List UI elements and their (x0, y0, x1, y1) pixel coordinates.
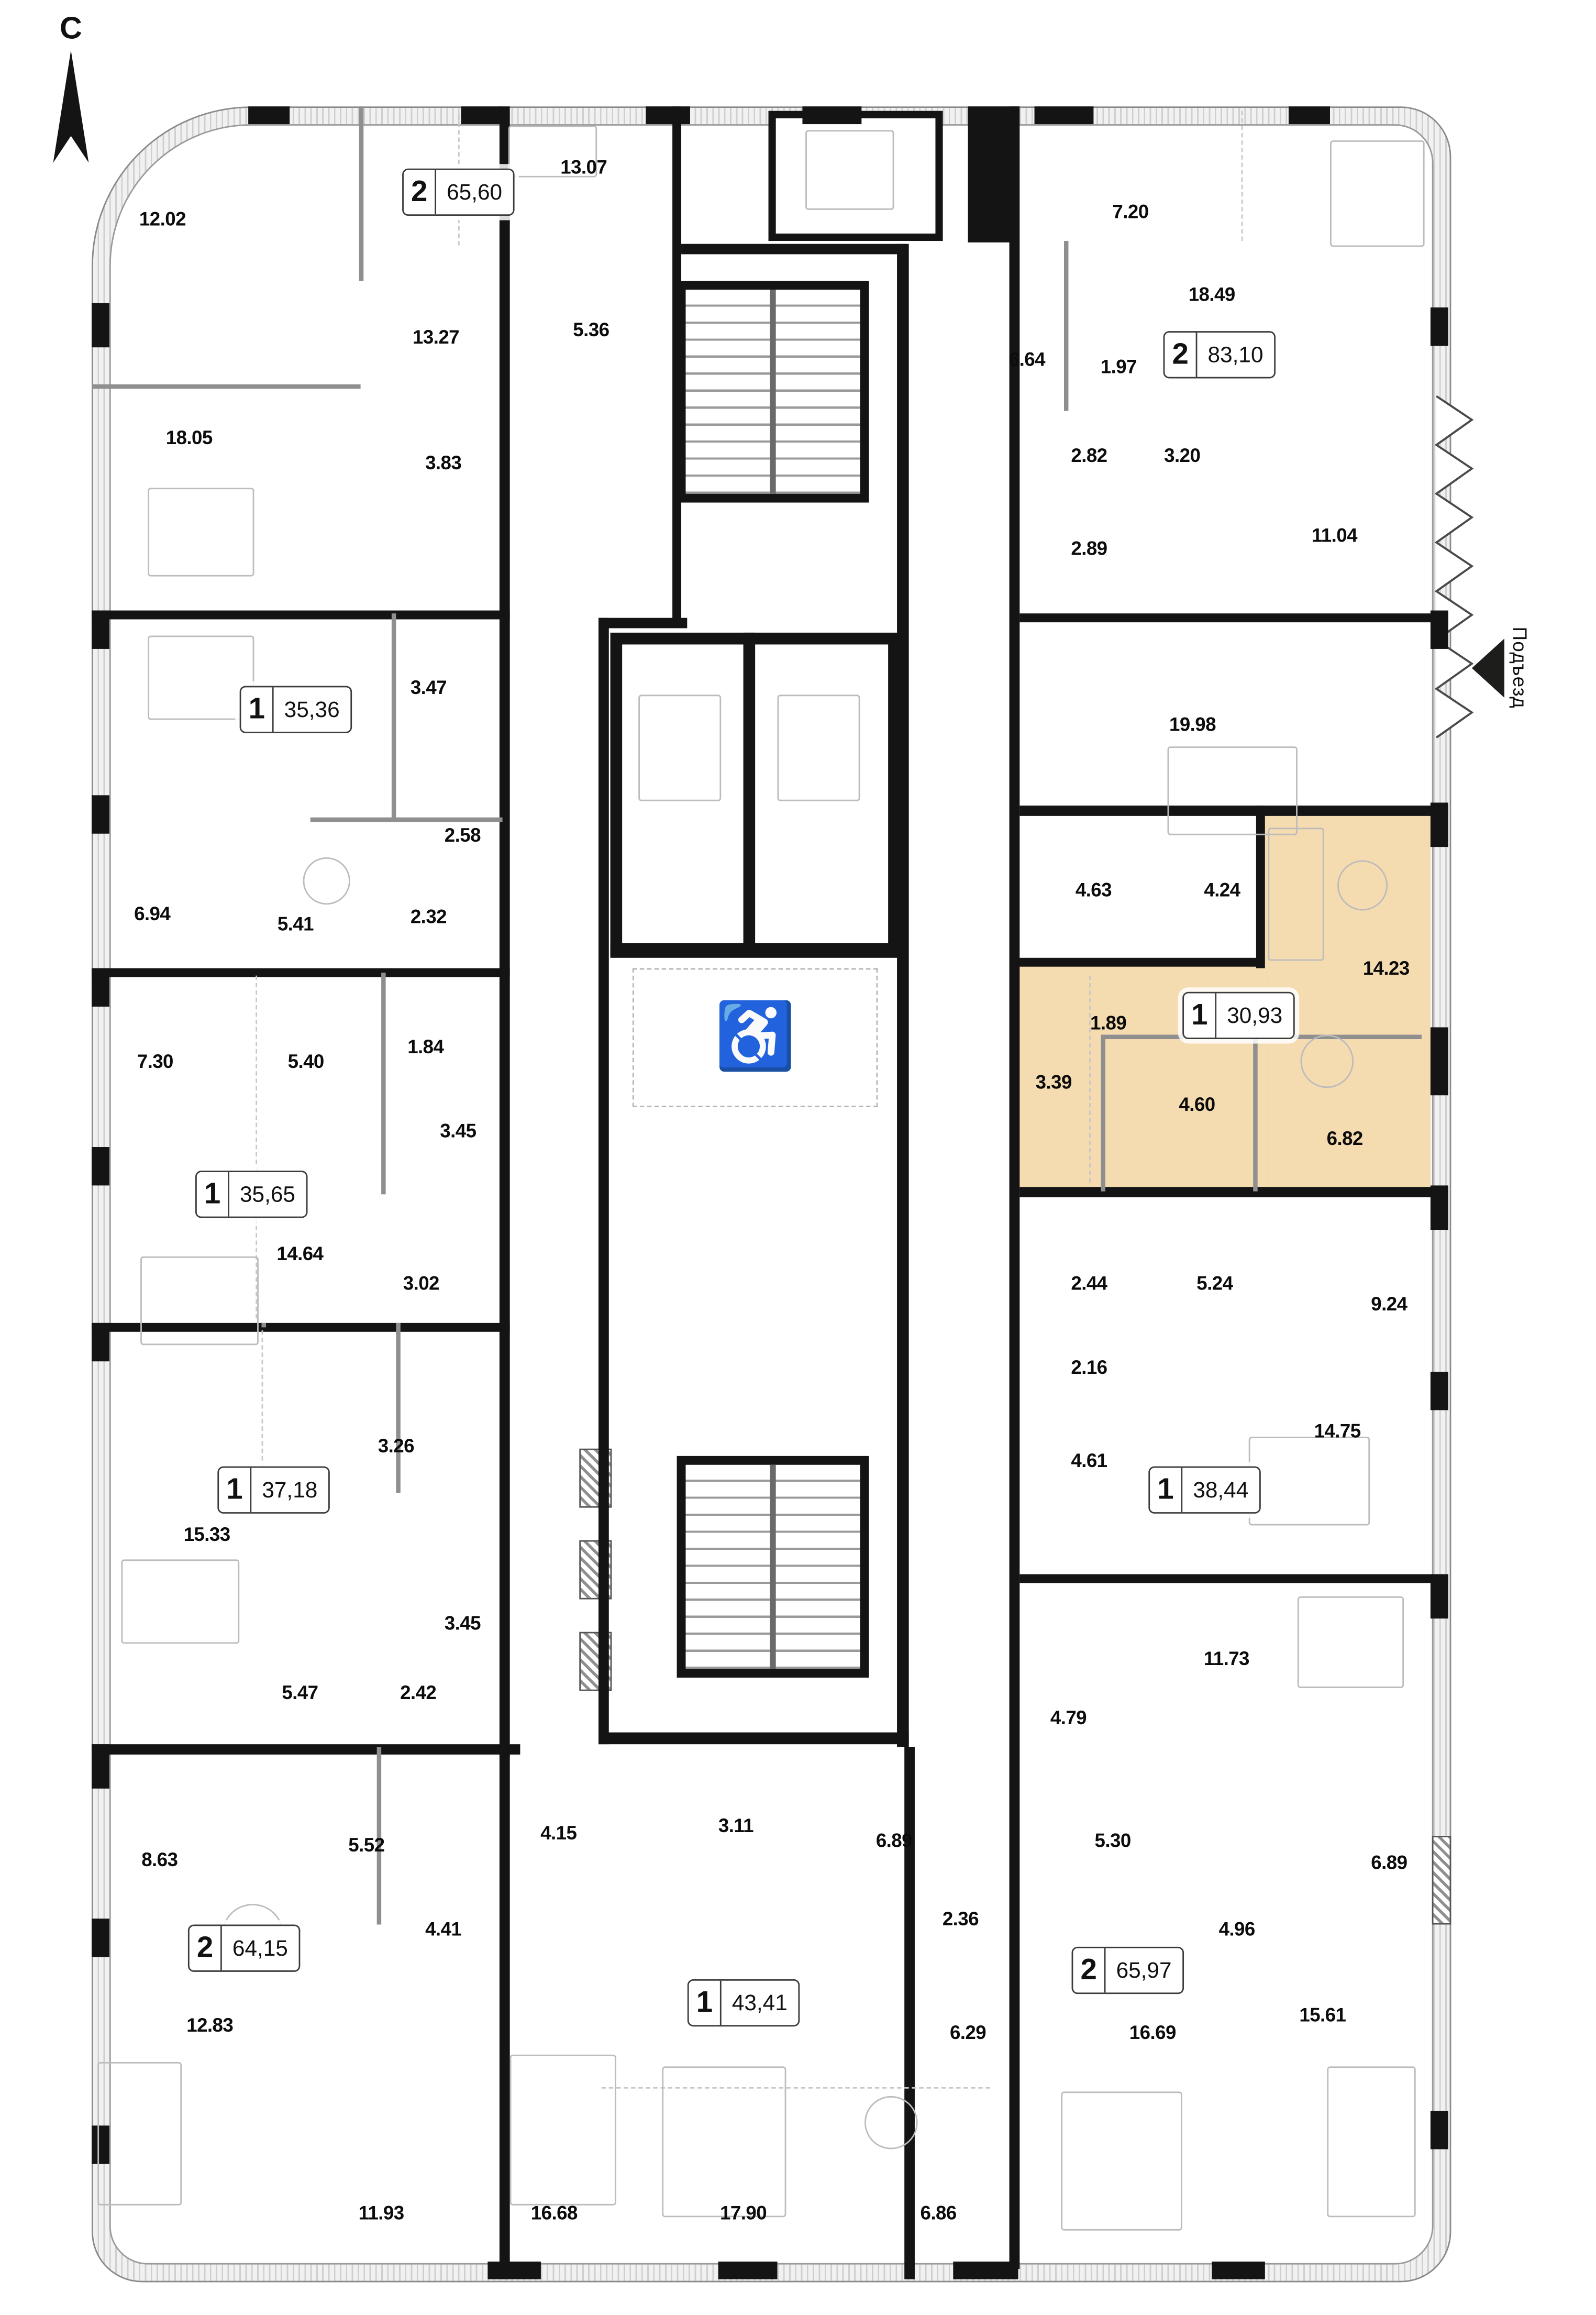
furniture-outline (1249, 1437, 1370, 1525)
apartment-badge[interactable]: 264,15 (188, 1925, 300, 1972)
room-area-label: 11.73 (1204, 1647, 1249, 1669)
facade-pier-hatch (1432, 1836, 1451, 1924)
furniture-outline (1327, 2066, 1415, 2217)
facade-pier (1431, 1574, 1448, 1619)
facade-pier (953, 2262, 1018, 2279)
table-outline (864, 2096, 918, 2149)
partition-wall (1064, 241, 1068, 411)
room-area-label: 13.27 (413, 326, 459, 348)
apartment-total-area: 64,15 (222, 1926, 298, 1970)
apartment-badge[interactable]: 137,18 (217, 1467, 329, 1514)
furniture-outline (121, 1559, 239, 1644)
room-area-label: 1.89 (1090, 1012, 1126, 1034)
wall-segment (1019, 613, 1448, 622)
room-area-label: 4.41 (425, 1918, 461, 1940)
zone-separator-dashed (1089, 976, 1091, 1183)
room-area-label: 15.61 (1299, 2003, 1346, 2025)
facade-pier (1431, 307, 1448, 346)
wall-segment (598, 618, 687, 629)
partition-wall (1253, 1035, 1257, 1192)
partition-wall (359, 106, 363, 281)
room-area-label: 4.15 (540, 1822, 577, 1844)
room-area-label: 18.05 (166, 426, 213, 448)
room-area-label: 14.23 (1363, 957, 1410, 979)
table-outline (1301, 1035, 1354, 1088)
furniture-outline (97, 2062, 182, 2206)
balcony-glazing-zigzag (1436, 396, 1481, 751)
apartment-badge[interactable]: 283,10 (1163, 331, 1276, 378)
furniture-outline (510, 2055, 616, 2206)
room-area-label: 11.04 (1312, 524, 1357, 546)
table-outline (303, 857, 350, 905)
facade-pier (1035, 106, 1094, 124)
facade-pier (1431, 611, 1448, 649)
elevator-car (777, 694, 860, 801)
room-area-label: 6.29 (950, 2021, 986, 2043)
room-area-label: 6.89 (1371, 1851, 1407, 1873)
wall-segment (681, 244, 906, 255)
room-area-label: 4.61 (1071, 1449, 1107, 1471)
facade-pier (92, 1323, 109, 1361)
room-area-label: 5.41 (278, 913, 314, 935)
apartment-rooms-count: 1 (219, 1468, 251, 1512)
facade-pier (461, 106, 503, 124)
room-area-label: 2.42 (400, 1681, 436, 1703)
apartment-rooms-count: 1 (1150, 1468, 1182, 1512)
wall-segment (1017, 958, 1263, 967)
room-area-label: 1.97 (1101, 356, 1137, 378)
apartment-rooms-count: 1 (689, 1981, 722, 2025)
apartment-total-area: 83,10 (1198, 333, 1273, 377)
apartment-total-area: 35,36 (274, 687, 350, 732)
facade-pier (248, 106, 290, 124)
furniture-outline (1330, 140, 1425, 247)
room-area-label: 4.79 (1050, 1706, 1087, 1728)
room-area-label: 6.82 (1327, 1127, 1363, 1149)
apartment-rooms-count: 2 (1073, 1948, 1105, 1993)
room-area-label: 7.30 (137, 1050, 173, 1072)
wall-segment (897, 244, 909, 1747)
room-area-label: 16.68 (531, 2202, 578, 2224)
room-area-label: 5.40 (288, 1050, 324, 1072)
room-area-label: 14.64 (276, 1242, 323, 1264)
wall-segment (672, 106, 681, 621)
apartment-rooms-count: 2 (190, 1926, 222, 1970)
wall-segment (611, 943, 900, 958)
room-area-label: 4.96 (1219, 1918, 1255, 1940)
room-area-label: 2.82 (1071, 444, 1107, 466)
apartment-badge[interactable]: 143,41 (688, 1979, 800, 2026)
facade-pier (487, 2262, 541, 2279)
apartment-total-area: 43,41 (722, 1981, 797, 2025)
facade-pier (1212, 2262, 1265, 2279)
facade-pier (718, 2262, 778, 2279)
facade-pier (92, 795, 109, 833)
facade-pier (92, 1919, 109, 1957)
elevator-car (638, 694, 721, 801)
facade-pier (646, 106, 690, 124)
apartment-total-area: 38,44 (1183, 1468, 1259, 1512)
room-area-label: 5.30 (1095, 1829, 1131, 1851)
room-area-label: 3.45 (445, 1612, 481, 1634)
room-area-label: 5.47 (282, 1681, 318, 1703)
facade-pier (92, 1744, 109, 1789)
furniture-outline (140, 1256, 259, 1345)
facade-pier (92, 1147, 109, 1185)
furniture-outline (1268, 828, 1324, 961)
wheelchair-icon: ♿ (715, 1005, 796, 1070)
apartment-badge[interactable]: 265,60 (402, 169, 514, 216)
room-area-label: 5.36 (573, 318, 609, 340)
room-area-label: 4.24 (1204, 879, 1240, 901)
room-area-label: 3.83 (425, 451, 461, 473)
room-area-label: 12.83 (186, 2014, 233, 2036)
wall-segment (92, 1744, 520, 1755)
wall-segment (904, 1747, 915, 2279)
apartment-total-area: 65,97 (1106, 1948, 1182, 1993)
apartment-total-area: 65,60 (436, 170, 512, 215)
wall-segment (500, 1747, 510, 2279)
room-area-label: 12.02 (139, 208, 186, 230)
room-area-label: 2.44 (1071, 1272, 1107, 1294)
furniture-outline (662, 2066, 786, 2217)
wall-segment (500, 106, 510, 1757)
room-area-label: 3.47 (411, 676, 447, 698)
facade-pier (92, 611, 109, 649)
partition-wall (311, 818, 503, 822)
wall-segment (92, 968, 510, 977)
partition-wall (381, 973, 385, 1194)
apartment-badge[interactable]: 135,36 (240, 686, 352, 733)
zone-separator-dashed (1242, 111, 1243, 241)
room-area-label: 1.84 (407, 1035, 444, 1057)
room-area-label: 6.86 (921, 2202, 957, 2224)
apartment-badge[interactable]: 265,97 (1072, 1947, 1184, 1994)
north-indicator: С (41, 12, 101, 173)
entrance-label: Подъезд (1509, 627, 1531, 709)
facade-pier (1431, 802, 1448, 847)
stair-divider (770, 1465, 775, 1669)
room-area-label: 14.75 (1314, 1420, 1361, 1442)
facade-pier (1431, 2111, 1448, 2149)
furniture-outline (148, 636, 254, 720)
room-area-label: 3.26 (378, 1435, 414, 1457)
room-area-label: 5.52 (348, 1834, 384, 1856)
partition-wall (1101, 1035, 1105, 1192)
room-area-label: 4.63 (1076, 879, 1112, 901)
room-area-label: 2.32 (411, 906, 447, 928)
apartment-total-area: 37,18 (252, 1468, 328, 1512)
apartment-rooms-count: 1 (197, 1172, 229, 1217)
room-area-label: 2.36 (943, 1908, 979, 1930)
room-area-label: 6.94 (134, 902, 170, 924)
facade-pier (92, 968, 109, 1007)
apartment-rooms-count: 1 (241, 687, 273, 732)
stairwell-bottom (677, 1456, 869, 1678)
room-area-label: 3.11 (718, 1814, 753, 1836)
room-area-label: 5.24 (1196, 1272, 1233, 1294)
furniture-outline (1298, 1596, 1404, 1688)
wheelchair-zone: ♿ (633, 968, 878, 1107)
stair-divider (770, 290, 775, 493)
floor-plan: С Подъезд ♿ 12.0213.077.2018.4913.275.36… (0, 0, 1596, 2315)
wall-segment (92, 611, 510, 620)
apartment-total-area: 35,65 (229, 1172, 305, 1217)
furniture-outline (1168, 746, 1298, 835)
furniture-outline (1061, 2091, 1182, 2230)
north-letter: С (41, 12, 101, 48)
wall-segment (1010, 106, 1020, 2269)
furniture-outline (148, 488, 254, 576)
apartment-rooms-count: 2 (404, 170, 436, 215)
facade-pier (1431, 1185, 1448, 1230)
room-area-label: 17.90 (720, 2202, 767, 2224)
partition-wall (262, 1323, 266, 1327)
room-area-label: 15.33 (184, 1523, 230, 1545)
room-area-label: 8.63 (141, 1848, 178, 1870)
vent-shaft-inner (805, 130, 894, 210)
room-area-label: 2.58 (445, 824, 481, 846)
room-area-label: 13.07 (560, 156, 607, 178)
wall-segment (598, 618, 609, 1745)
apartment-rooms-count: 2 (1165, 333, 1197, 377)
room-area-label: 9.24 (1371, 1293, 1407, 1315)
wall-segment (1019, 1574, 1448, 1583)
wall-segment (1019, 1187, 1448, 1197)
room-area-label: 18.49 (1189, 283, 1235, 305)
stairwell-top (677, 281, 869, 502)
apartment-badge-highlighted[interactable]: 130,93 (1182, 992, 1294, 1039)
apartment-badge[interactable]: 138,44 (1148, 1467, 1260, 1514)
table-outline (1337, 861, 1388, 911)
room-area-label: 19.98 (1169, 713, 1216, 735)
facade-pier (92, 303, 109, 348)
room-area-label: 16.69 (1129, 2021, 1176, 2043)
partition-wall (396, 1323, 400, 1493)
wall-segment (598, 1733, 909, 1745)
room-area-label: 4.60 (1179, 1093, 1215, 1115)
room-area-label: 2.89 (1071, 537, 1107, 559)
north-arrow-icon (49, 50, 93, 169)
room-area-label: 3.02 (403, 1272, 439, 1294)
facade-pier (802, 106, 861, 124)
partition-wall (392, 613, 396, 820)
room-area-label: 3.45 (440, 1120, 476, 1142)
apartment-rooms-count: 1 (1184, 994, 1216, 1038)
facade-pier (1289, 106, 1330, 124)
apartment-badge[interactable]: 135,65 (195, 1171, 307, 1218)
room-area-label: 2.16 (1071, 1356, 1107, 1378)
facade-pier (1431, 1372, 1448, 1410)
elevator-divider-wall (744, 633, 756, 955)
facade-pier (1431, 1027, 1448, 1095)
zone-separator-dashed (602, 2087, 990, 2089)
room-area-label: 3.20 (1164, 444, 1200, 466)
wall-segment (968, 106, 1018, 242)
room-area-label: 6.89 (876, 1829, 912, 1851)
room-area-label: 3.39 (1036, 1071, 1072, 1093)
room-area-label: 11.93 (359, 2202, 404, 2224)
room-area-label: 6.64 (1009, 348, 1045, 370)
partition-wall (92, 384, 361, 389)
apartment-total-area: 30,93 (1216, 994, 1292, 1038)
room-area-label: 7.20 (1112, 200, 1148, 222)
